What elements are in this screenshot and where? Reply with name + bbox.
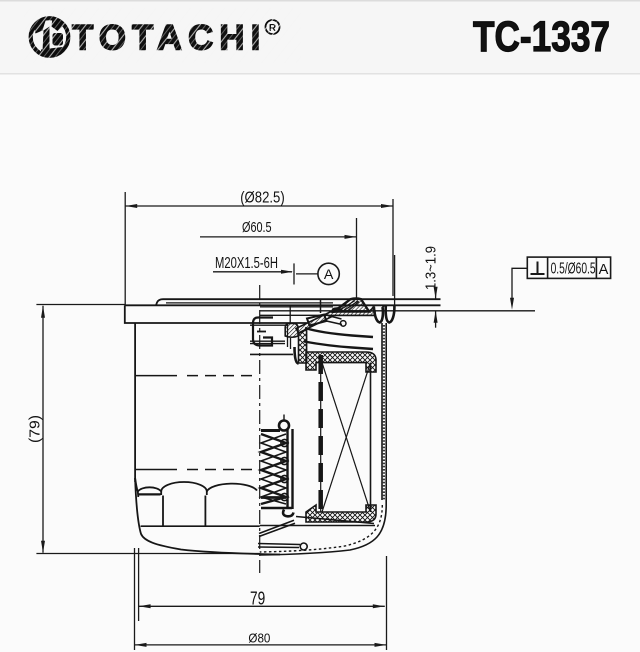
svg-text:Ø60.5: Ø60.5 bbox=[242, 220, 272, 236]
svg-text:Ø80: Ø80 bbox=[248, 630, 270, 645]
svg-text:A: A bbox=[599, 262, 609, 278]
svg-text:1.3~1.9: 1.3~1.9 bbox=[424, 246, 440, 290]
svg-text:79: 79 bbox=[250, 589, 265, 609]
svg-text:(79): (79) bbox=[28, 415, 44, 443]
svg-text:A: A bbox=[324, 267, 334, 283]
svg-text:TC-1337: TC-1337 bbox=[473, 14, 610, 61]
svg-text:0.5/Ø60.5: 0.5/Ø60.5 bbox=[551, 260, 596, 277]
svg-text:M20X1.5-6H: M20X1.5-6H bbox=[215, 255, 278, 272]
svg-text:(Ø82.5): (Ø82.5) bbox=[240, 189, 285, 206]
